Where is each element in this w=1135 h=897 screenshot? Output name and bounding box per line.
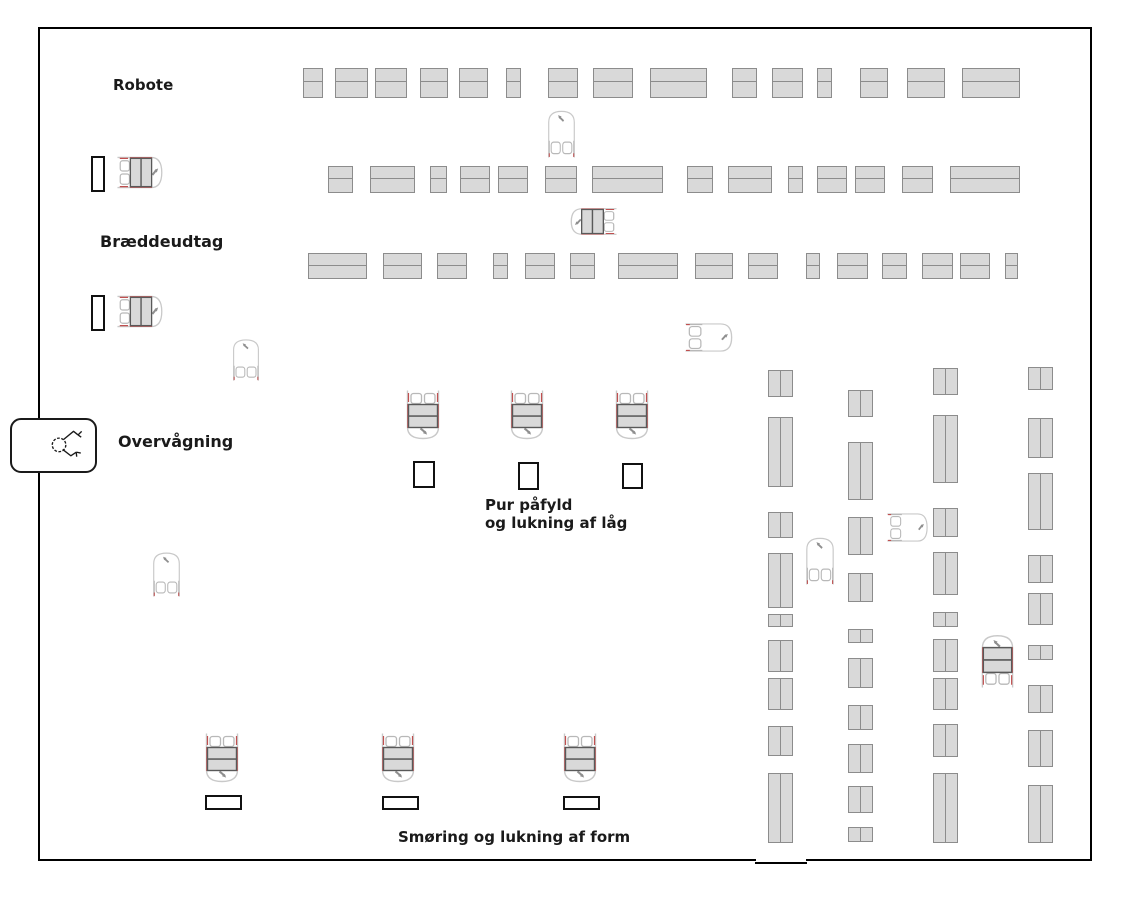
agv-empty-right	[685, 320, 735, 355]
agv-empty-up	[803, 535, 837, 585]
storage-rack-horizontal	[817, 166, 847, 193]
storage-rack-vertical	[933, 724, 958, 757]
storage-rack-horizontal	[493, 253, 508, 279]
label-smoring: Smøring og lukning af form	[398, 828, 630, 846]
agv-loaded-down	[560, 733, 600, 785]
label-overvaagning: Overvågning	[118, 432, 233, 451]
storage-rack-horizontal	[950, 166, 1020, 193]
agv-loaded-up	[978, 632, 1017, 688]
storage-rack-horizontal	[618, 253, 678, 279]
storage-rack-vertical	[768, 726, 793, 756]
storage-rack-vertical	[1028, 645, 1053, 660]
buffer-slot-braeddeudtag	[91, 295, 105, 331]
storage-rack-vertical	[1028, 367, 1053, 390]
storage-rack-horizontal	[593, 68, 633, 98]
storage-rack-vertical	[848, 744, 873, 773]
form-station-slot	[563, 796, 600, 810]
agv-loaded-down	[612, 390, 652, 442]
storage-rack-horizontal	[772, 68, 803, 98]
storage-rack-horizontal	[308, 253, 367, 279]
agv-loaded-down	[202, 733, 242, 785]
storage-rack-horizontal	[375, 68, 407, 98]
storage-rack-vertical	[848, 442, 873, 500]
storage-rack-horizontal	[806, 253, 820, 279]
storage-rack-horizontal	[728, 166, 772, 193]
storage-rack-horizontal	[650, 68, 707, 98]
storage-rack-vertical	[933, 508, 958, 537]
storage-rack-vertical	[768, 370, 793, 397]
storage-rack-vertical	[768, 678, 793, 710]
storage-rack-vertical	[848, 390, 873, 417]
storage-rack-horizontal	[882, 253, 907, 279]
storage-rack-horizontal	[525, 253, 555, 279]
storage-rack-vertical	[1028, 685, 1053, 713]
agv-empty-up	[150, 550, 183, 597]
storage-rack-vertical	[768, 640, 793, 672]
storage-rack-vertical	[768, 512, 793, 538]
wall-notch	[756, 859, 806, 861]
label-pur-line2: og lukning af låg	[485, 514, 627, 532]
agv-loaded-down	[403, 390, 443, 442]
storage-rack-vertical	[1028, 785, 1053, 843]
pur-fill-station-slot	[518, 462, 539, 490]
storage-rack-vertical	[848, 786, 873, 813]
storage-rack-horizontal	[545, 166, 577, 193]
form-station-slot	[382, 796, 419, 810]
storage-rack-horizontal	[303, 68, 323, 98]
storage-rack-vertical	[1028, 418, 1053, 458]
storage-rack-vertical	[933, 552, 958, 595]
storage-rack-vertical	[848, 517, 873, 555]
storage-rack-horizontal	[788, 166, 803, 193]
storage-rack-horizontal	[902, 166, 933, 193]
agv-loaded-left	[568, 205, 617, 238]
storage-rack-horizontal	[498, 166, 528, 193]
storage-rack-vertical	[1028, 473, 1053, 530]
label-pur-paafyld: Pur påfyld og lukning af låg	[485, 496, 627, 532]
storage-rack-vertical	[768, 773, 793, 843]
storage-rack-horizontal	[460, 166, 490, 193]
agv-empty-up	[545, 108, 578, 158]
storage-rack-horizontal	[420, 68, 448, 98]
buffer-slot-robote	[91, 156, 105, 192]
storage-rack-horizontal	[1005, 253, 1018, 279]
surveillance-station-box	[10, 418, 97, 473]
storage-rack-horizontal	[459, 68, 488, 98]
agv-empty-right	[887, 510, 930, 545]
storage-rack-horizontal	[695, 253, 733, 279]
storage-rack-vertical	[848, 827, 873, 842]
storage-rack-horizontal	[855, 166, 885, 193]
storage-rack-vertical	[848, 629, 873, 643]
storage-rack-vertical	[933, 415, 958, 483]
storage-rack-horizontal	[548, 68, 578, 98]
agv-loaded-down	[378, 733, 418, 785]
form-station-slot	[205, 795, 242, 810]
storage-rack-horizontal	[860, 68, 888, 98]
agv-loaded-right	[117, 292, 165, 331]
storage-rack-horizontal	[328, 166, 353, 193]
storage-rack-horizontal	[370, 166, 415, 193]
storage-rack-vertical	[848, 573, 873, 602]
storage-rack-horizontal	[837, 253, 868, 279]
label-robote: Robote	[113, 76, 173, 94]
storage-rack-vertical	[933, 368, 958, 395]
storage-rack-horizontal	[748, 253, 778, 279]
pur-fill-station-slot	[413, 461, 435, 488]
storage-rack-horizontal	[817, 68, 832, 98]
storage-rack-horizontal	[430, 166, 447, 193]
agv-empty-up	[230, 337, 262, 381]
storage-rack-vertical	[1028, 555, 1053, 583]
agv-loaded-down	[507, 390, 547, 442]
agv-loaded-right	[117, 153, 165, 192]
wall-notch-line	[755, 862, 807, 864]
surveillance-camera-sketch-icon	[48, 425, 90, 467]
storage-rack-horizontal	[335, 68, 368, 98]
storage-rack-vertical	[933, 678, 958, 710]
label-pur-line1: Pur påfyld	[485, 496, 627, 514]
storage-rack-vertical	[1028, 593, 1053, 625]
storage-rack-vertical	[933, 639, 958, 672]
storage-rack-vertical	[768, 553, 793, 608]
storage-rack-horizontal	[437, 253, 467, 279]
storage-rack-vertical	[848, 658, 873, 688]
storage-rack-vertical	[1028, 730, 1053, 767]
floor-plan-canvas: Robote Bræddeudtag Overvågning Pur påfyl…	[0, 0, 1135, 897]
storage-rack-vertical	[933, 612, 958, 627]
label-braeddeudtag: Bræddeudtag	[100, 232, 223, 251]
storage-rack-horizontal	[922, 253, 953, 279]
storage-rack-horizontal	[592, 166, 663, 193]
storage-rack-horizontal	[960, 253, 990, 279]
storage-rack-horizontal	[732, 68, 757, 98]
storage-rack-vertical	[933, 773, 958, 843]
storage-rack-horizontal	[383, 253, 422, 279]
storage-rack-horizontal	[962, 68, 1020, 98]
storage-rack-horizontal	[687, 166, 713, 193]
storage-rack-vertical	[848, 705, 873, 730]
storage-rack-vertical	[768, 614, 793, 627]
storage-rack-horizontal	[506, 68, 521, 98]
storage-rack-vertical	[768, 417, 793, 487]
storage-rack-horizontal	[570, 253, 595, 279]
pur-fill-station-slot	[622, 463, 643, 489]
storage-rack-horizontal	[907, 68, 945, 98]
